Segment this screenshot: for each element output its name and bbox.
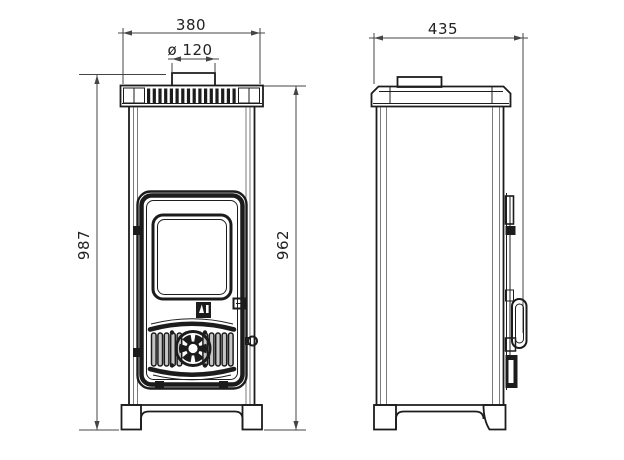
front-rosette-damper: [176, 332, 210, 366]
front-flue-collar: [172, 73, 215, 86]
dim-label-flue-diameter: ø 120: [167, 41, 212, 59]
front-base: [121, 405, 262, 430]
side-top-plate: [372, 87, 511, 107]
stove-technical-drawing: 380 ø 120 987 962 435: [0, 0, 624, 460]
front-hinge-top: [133, 226, 140, 235]
dimension-flue-diameter: ø 120: [167, 41, 219, 72]
dim-label-front-width: 380: [176, 16, 206, 34]
front-air-control: [150, 319, 234, 380]
drawing-canvas: 380 ø 120 987 962 435: [0, 0, 624, 460]
side-base: [374, 405, 506, 430]
dim-label-side-depth: 435: [428, 20, 458, 38]
front-door-foot-right: [219, 381, 228, 388]
front-door-window: [153, 215, 231, 299]
front-door-foot-left: [155, 381, 164, 388]
side-body: [377, 107, 504, 406]
side-view: [372, 77, 527, 430]
dim-label-body-height: 962: [274, 230, 292, 260]
front-door-badge: [196, 302, 211, 318]
front-body: [129, 107, 255, 406]
side-door-handle: [512, 299, 527, 348]
front-top-plate: [121, 86, 264, 107]
front-grille-slots: [147, 89, 236, 104]
dim-label-overall-height: 987: [75, 230, 93, 260]
front-view: [121, 73, 264, 430]
side-flue-collar: [398, 77, 442, 87]
dimension-body-height: 962: [264, 86, 306, 430]
front-hinge-bottom: [133, 348, 140, 357]
